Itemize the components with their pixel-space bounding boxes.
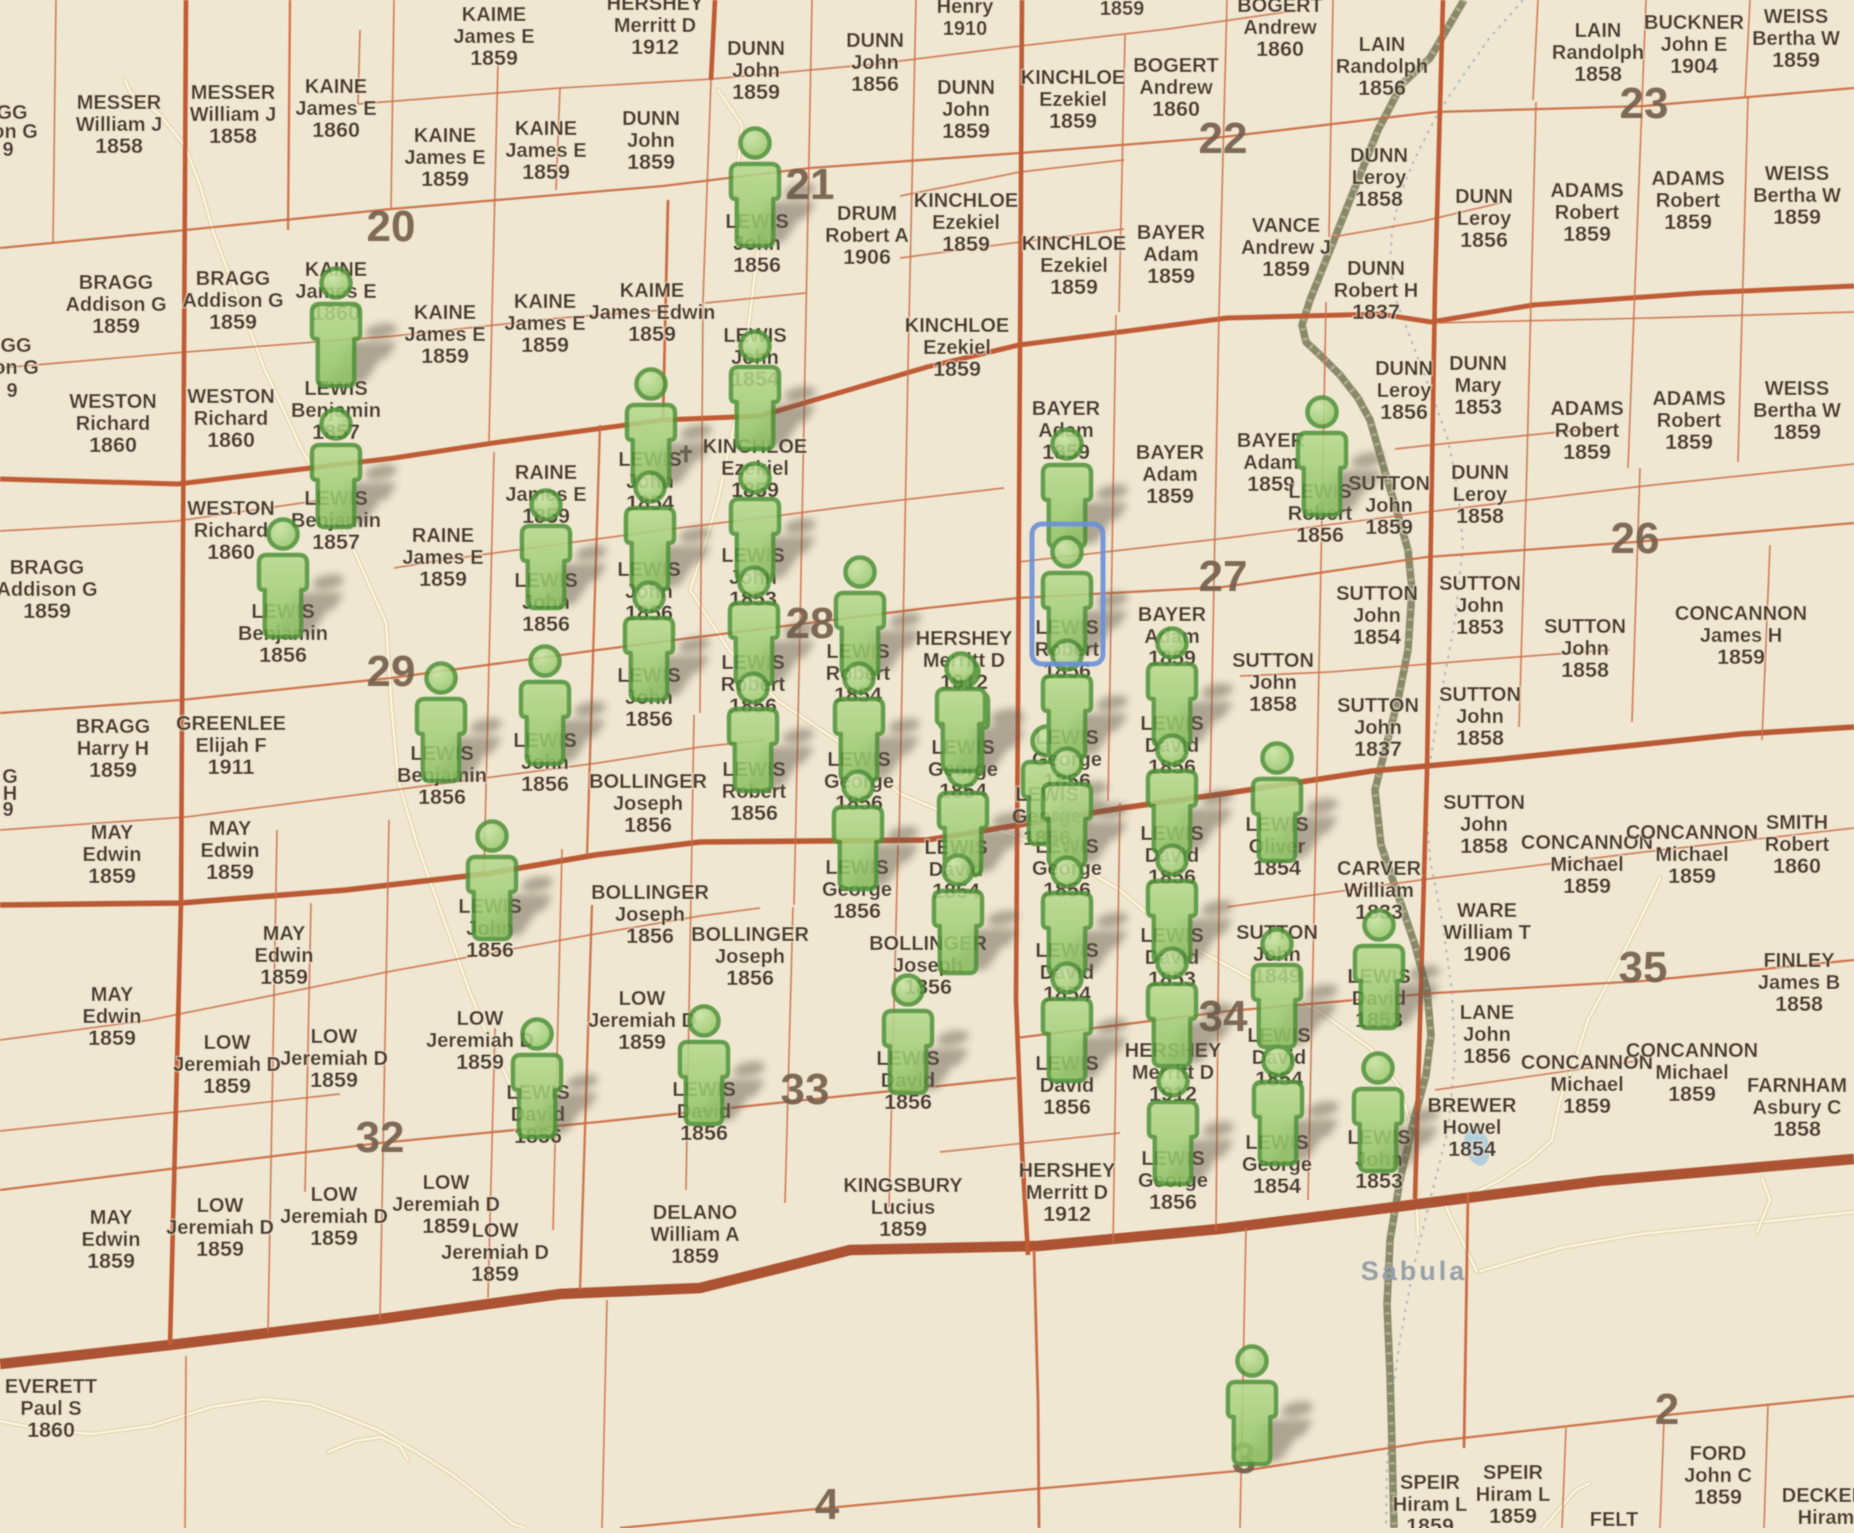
svg-text:1859: 1859	[1050, 275, 1098, 299]
svg-text:MAY: MAY	[91, 822, 134, 844]
svg-text:William J: William J	[76, 114, 163, 136]
svg-text:Edwin: Edwin	[83, 1006, 142, 1028]
svg-text:BRAGG: BRAGG	[196, 268, 270, 290]
svg-text:John E: John E	[1661, 34, 1728, 56]
svg-text:Edwin: Edwin	[255, 945, 314, 967]
svg-text:1858: 1858	[1574, 62, 1622, 86]
svg-text:MESSER: MESSER	[77, 92, 162, 114]
svg-text:DUNN: DUNN	[727, 38, 785, 60]
svg-text:John: John	[1353, 605, 1401, 627]
svg-text:on G: on G	[0, 357, 39, 379]
svg-text:KINGSBURY: KINGSBURY	[843, 1175, 963, 1197]
svg-text:BUCKNER: BUCKNER	[1644, 12, 1745, 34]
svg-text:1859: 1859	[1665, 430, 1713, 454]
svg-text:33: 33	[781, 1065, 830, 1114]
svg-text:1911: 1911	[208, 755, 255, 779]
svg-text:James E: James E	[453, 26, 534, 48]
svg-text:DUNN: DUNN	[1375, 358, 1433, 380]
svg-text:35: 35	[1619, 943, 1668, 992]
svg-text:WEISS: WEISS	[1765, 163, 1829, 185]
svg-text:1853: 1853	[1454, 395, 1502, 419]
svg-text:John: John	[627, 130, 675, 152]
svg-text:LANE: LANE	[1460, 1002, 1514, 1024]
svg-text:John: John	[1456, 595, 1504, 617]
svg-text:1859: 1859	[421, 344, 469, 368]
svg-text:RAINE: RAINE	[515, 462, 577, 484]
svg-text:Addison G: Addison G	[182, 290, 283, 312]
svg-text:John: John	[1460, 814, 1508, 836]
svg-text:DUNN: DUNN	[1455, 186, 1513, 208]
svg-text:DUNN: DUNN	[1350, 145, 1408, 167]
svg-text:Joseph: Joseph	[715, 946, 785, 968]
svg-text:1859: 1859	[1365, 515, 1413, 539]
svg-text:Mary: Mary	[1455, 375, 1503, 397]
svg-text:Merritt D: Merritt D	[1026, 1182, 1108, 1204]
svg-text:1859: 1859	[732, 80, 780, 104]
svg-text:LOW: LOW	[311, 1184, 358, 1206]
svg-text:1859: 1859	[1664, 210, 1712, 234]
svg-text:1859: 1859	[1147, 264, 1195, 288]
svg-text:SUTTON: SUTTON	[1232, 650, 1314, 672]
svg-text:Jeremiah D: Jeremiah D	[280, 1206, 388, 1228]
svg-text:KINCHLOE: KINCHLOE	[1021, 67, 1125, 89]
svg-text:LAIN: LAIN	[1359, 34, 1406, 56]
svg-text:1859: 1859	[1773, 205, 1821, 229]
svg-text:WESTON: WESTON	[69, 391, 156, 413]
svg-text:1906: 1906	[1463, 942, 1511, 966]
svg-text:Richard: Richard	[194, 520, 268, 542]
svg-text:1853: 1853	[1456, 615, 1504, 639]
svg-text:BAYER: BAYER	[1032, 398, 1101, 420]
svg-text:1859: 1859	[206, 860, 254, 884]
svg-text:1858: 1858	[1456, 726, 1504, 750]
svg-text:RAINE: RAINE	[412, 525, 474, 547]
svg-text:ADAMS: ADAMS	[1652, 388, 1725, 410]
svg-text:1858: 1858	[1456, 504, 1504, 528]
svg-text:1859: 1859	[618, 1030, 666, 1054]
svg-text:FELT: FELT	[1590, 1509, 1639, 1528]
svg-text:1858: 1858	[1773, 1117, 1821, 1141]
svg-text:1859: 1859	[627, 150, 675, 174]
svg-text:1856: 1856	[1463, 1044, 1511, 1068]
svg-text:1859: 1859	[88, 864, 136, 888]
svg-text:MAY: MAY	[209, 818, 252, 840]
svg-text:1856: 1856	[833, 899, 881, 923]
svg-text:Adam: Adam	[1143, 244, 1199, 266]
svg-text:Paul S: Paul S	[20, 1398, 81, 1420]
svg-text:1859: 1859	[89, 758, 137, 782]
svg-text:1856: 1856	[626, 924, 674, 948]
svg-text:SUTTON: SUTTON	[1337, 695, 1419, 717]
svg-text:James Edwin: James Edwin	[589, 302, 716, 324]
svg-text:Leroy: Leroy	[1457, 208, 1512, 230]
svg-text:LAIN: LAIN	[1575, 20, 1622, 42]
svg-text:John: John	[1463, 1024, 1511, 1046]
svg-text:1859: 1859	[521, 333, 569, 357]
svg-text:1856: 1856	[733, 253, 781, 277]
svg-text:HERSHEY: HERSHEY	[916, 628, 1013, 650]
svg-text:Robert: Robert	[1555, 420, 1620, 442]
svg-text:MESSER: MESSER	[191, 82, 276, 104]
svg-text:1858: 1858	[1249, 692, 1297, 716]
svg-text:DUNN: DUNN	[1451, 462, 1509, 484]
svg-text:ADAMS: ADAMS	[1550, 398, 1623, 420]
svg-text:HERSHEY: HERSHEY	[1019, 1160, 1116, 1182]
svg-text:FORD: FORD	[1690, 1443, 1747, 1465]
svg-text:Michael: Michael	[1550, 854, 1623, 876]
svg-text:Asbury C: Asbury C	[1753, 1097, 1842, 1119]
svg-text:1859: 1859	[1717, 645, 1765, 669]
svg-text:Bertha W: Bertha W	[1753, 400, 1841, 422]
svg-text:1859: 1859	[1772, 48, 1820, 72]
svg-text:1859: 1859	[1563, 440, 1611, 464]
svg-text:Jeremiah D: Jeremiah D	[280, 1048, 388, 1070]
svg-text:BOLLINGER: BOLLINGER	[591, 882, 709, 904]
svg-text:4: 4	[815, 1480, 840, 1528]
svg-text:1858: 1858	[1460, 834, 1508, 858]
svg-text:1859: 1859	[879, 1217, 927, 1241]
svg-text:John: John	[1456, 706, 1504, 728]
svg-text:1860: 1860	[312, 118, 360, 142]
svg-text:1860: 1860	[1152, 97, 1200, 121]
svg-text:Leroy: Leroy	[1377, 380, 1432, 402]
svg-text:1859: 1859	[933, 357, 981, 381]
svg-text:1837: 1837	[1354, 737, 1402, 761]
svg-text:Bertha W: Bertha W	[1752, 28, 1840, 50]
svg-text:1912: 1912	[631, 35, 679, 59]
svg-text:1859: 1859	[1563, 222, 1611, 246]
svg-text:9: 9	[2, 139, 13, 161]
svg-text:Elijah F: Elijah F	[195, 735, 266, 757]
svg-text:Harry H: Harry H	[77, 738, 149, 760]
svg-text:1856: 1856	[625, 707, 673, 731]
svg-text:John: John	[1365, 495, 1413, 517]
svg-text:1856: 1856	[522, 612, 570, 636]
svg-text:1859: 1859	[310, 1226, 358, 1250]
svg-text:1856: 1856	[624, 813, 672, 837]
svg-text:KAINE: KAINE	[305, 76, 367, 98]
svg-text:VANCE: VANCE	[1252, 215, 1321, 237]
svg-text:Ezekiel: Ezekiel	[923, 337, 991, 359]
svg-text:DUNN: DUNN	[937, 77, 995, 99]
svg-text:KAINE: KAINE	[514, 291, 576, 313]
svg-text:SPEIR: SPEIR	[1483, 1462, 1544, 1484]
svg-text:1859: 1859	[87, 1249, 135, 1273]
svg-text:John: John	[732, 60, 780, 82]
svg-text:James E: James E	[504, 313, 585, 335]
svg-text:MAY: MAY	[91, 984, 134, 1006]
svg-text:1859: 1859	[1694, 1485, 1742, 1509]
svg-text:Ezekiel: Ezekiel	[1039, 89, 1107, 111]
svg-text:Howel: Howel	[1443, 1117, 1502, 1139]
svg-text:KAIME: KAIME	[620, 280, 684, 302]
svg-text:1859: 1859	[942, 232, 990, 256]
svg-text:Randolph: Randolph	[1552, 42, 1644, 64]
svg-text:SUTTON: SUTTON	[1439, 573, 1521, 595]
svg-text:1856: 1856	[466, 938, 514, 962]
svg-text:James E: James E	[404, 147, 485, 169]
svg-text:James E: James E	[404, 324, 485, 346]
svg-text:1859: 1859	[419, 567, 467, 591]
svg-text:1859: 1859	[92, 314, 140, 338]
svg-text:Addison G: Addison G	[0, 579, 98, 601]
svg-text:1859: 1859	[456, 1050, 504, 1074]
svg-text:FARNHAM: FARNHAM	[1747, 1075, 1847, 1097]
svg-text:Andrew: Andrew	[1139, 77, 1213, 99]
svg-text:BRAGG: BRAGG	[10, 557, 84, 579]
svg-text:1860: 1860	[1256, 37, 1304, 61]
svg-text:1904: 1904	[1670, 54, 1718, 78]
svg-text:Richard: Richard	[76, 413, 150, 435]
svg-text:KAINE: KAINE	[515, 118, 577, 140]
svg-text:1859: 1859	[310, 1068, 358, 1092]
svg-text:1858: 1858	[1355, 187, 1403, 211]
svg-text:CONCANNON: CONCANNON	[1626, 1040, 1758, 1062]
svg-text:BRAGG: BRAGG	[76, 716, 150, 738]
svg-text:1858: 1858	[209, 124, 257, 148]
svg-text:William: William	[1344, 880, 1414, 902]
svg-text:1859: 1859	[196, 1237, 244, 1261]
svg-text:1854: 1854	[1353, 625, 1401, 649]
svg-text:BOGERT: BOGERT	[1237, 0, 1323, 17]
svg-text:MAY: MAY	[263, 923, 306, 945]
svg-text:KAINE: KAINE	[414, 125, 476, 147]
svg-text:SUTTON: SUTTON	[1544, 616, 1626, 638]
svg-text:James E: James E	[295, 98, 376, 120]
svg-text:SUTTON: SUTTON	[1439, 684, 1521, 706]
svg-text:Joseph: Joseph	[613, 793, 683, 815]
svg-text:1860: 1860	[207, 540, 255, 564]
svg-text:9: 9	[2, 799, 13, 821]
svg-text:Lucius: Lucius	[871, 1197, 935, 1219]
svg-text:DELANO: DELANO	[653, 1202, 737, 1224]
svg-text:1859: 1859	[209, 310, 257, 334]
svg-text:1859: 1859	[628, 322, 676, 346]
svg-text:1856: 1856	[418, 785, 466, 809]
svg-text:1859: 1859	[1100, 0, 1145, 20]
svg-text:SUTTON: SUTTON	[1443, 792, 1525, 814]
svg-text:SMITH: SMITH	[1766, 812, 1828, 834]
svg-text:Merritt D: Merritt D	[614, 15, 696, 37]
svg-text:WARE: WARE	[1457, 900, 1517, 922]
svg-text:BOLLINGER: BOLLINGER	[691, 924, 809, 946]
svg-text:Ezekiel: Ezekiel	[1040, 255, 1108, 277]
svg-text:Robert: Robert	[1656, 190, 1721, 212]
svg-text:James H: James H	[1700, 625, 1782, 647]
svg-text:CONCANNON: CONCANNON	[1675, 603, 1807, 625]
svg-text:BAYER: BAYER	[1138, 604, 1207, 626]
svg-text:1859: 1859	[522, 160, 570, 184]
svg-text:DUNN: DUNN	[1347, 258, 1405, 280]
svg-text:ADAMS: ADAMS	[1651, 168, 1724, 190]
svg-text:GREENLEE: GREENLEE	[176, 713, 286, 735]
svg-text:1856: 1856	[1460, 228, 1508, 252]
svg-text:1859: 1859	[671, 1244, 719, 1268]
svg-text:Sabula: Sabula	[1361, 1256, 1468, 1286]
svg-text:Robert: Robert	[1657, 410, 1722, 432]
svg-text:LOW: LOW	[472, 1220, 519, 1242]
svg-text:1857: 1857	[312, 530, 360, 554]
svg-text:Bertha W: Bertha W	[1753, 185, 1841, 207]
svg-text:32: 32	[356, 1113, 405, 1162]
svg-text:John: John	[851, 52, 899, 74]
svg-text:Henry: Henry	[937, 0, 995, 18]
svg-text:Adam: Adam	[1142, 464, 1198, 486]
svg-text:1912: 1912	[1043, 1202, 1091, 1226]
svg-text:1859: 1859	[1406, 1514, 1454, 1528]
svg-text:1856: 1856	[259, 643, 307, 667]
svg-text:BOGERT: BOGERT	[1133, 55, 1219, 77]
svg-text:Robert: Robert	[1765, 834, 1830, 856]
svg-text:1859: 1859	[1049, 109, 1097, 133]
svg-text:Edwin: Edwin	[83, 844, 142, 866]
svg-text:EVERETT: EVERETT	[5, 1376, 97, 1398]
svg-text:CONCANNON: CONCANNON	[1626, 822, 1758, 844]
svg-text:Robert A: Robert A	[825, 225, 909, 247]
svg-text:SUTTON: SUTTON	[1336, 583, 1418, 605]
svg-text:Andrew: Andrew	[1243, 17, 1317, 39]
svg-text:1859: 1859	[471, 1262, 519, 1286]
svg-text:Edwin: Edwin	[201, 840, 260, 862]
svg-text:CARVER: CARVER	[1337, 858, 1422, 880]
svg-text:John: John	[1561, 638, 1609, 660]
svg-text:1860: 1860	[207, 428, 255, 452]
svg-text:Hiram L: Hiram L	[1393, 1494, 1467, 1516]
svg-text:Adam: Adam	[1243, 452, 1299, 474]
svg-text:KAINE: KAINE	[414, 302, 476, 324]
svg-text:1856: 1856	[730, 801, 778, 825]
svg-text:1858: 1858	[1775, 992, 1823, 1016]
svg-text:Michael: Michael	[1655, 844, 1728, 866]
svg-text:GG: GG	[0, 335, 31, 357]
svg-text:LOW: LOW	[619, 988, 666, 1010]
svg-text:William T: William T	[1443, 922, 1531, 944]
svg-text:LOW: LOW	[423, 1172, 470, 1194]
svg-text:Addison G: Addison G	[65, 294, 166, 316]
svg-text:1859: 1859	[1489, 1504, 1537, 1528]
svg-text:John: John	[1354, 717, 1402, 739]
svg-text:Andrew J: Andrew J	[1241, 237, 1331, 259]
svg-text:Edwin: Edwin	[82, 1229, 141, 1251]
svg-text:ADAMS: ADAMS	[1550, 180, 1623, 202]
svg-text:KINCHLOE: KINCHLOE	[1022, 233, 1126, 255]
svg-text:LOW: LOW	[457, 1008, 504, 1030]
svg-text:1856: 1856	[1043, 1095, 1091, 1119]
svg-text:Randolph: Randolph	[1336, 56, 1428, 78]
svg-text:Jeremiah D: Jeremiah D	[166, 1217, 274, 1239]
svg-text:1859: 1859	[1563, 874, 1611, 898]
svg-text:Jeremiah D: Jeremiah D	[392, 1194, 500, 1216]
svg-text:1860: 1860	[89, 433, 137, 457]
svg-text:Joseph: Joseph	[615, 904, 685, 926]
svg-text:BRAGG: BRAGG	[79, 272, 153, 294]
svg-text:1854: 1854	[1253, 1174, 1301, 1198]
svg-text:DECKER: DECKER	[1782, 1485, 1854, 1507]
svg-text:1856: 1856	[851, 72, 899, 96]
svg-text:DUNN: DUNN	[622, 108, 680, 130]
svg-text:William A: William A	[650, 1224, 739, 1246]
svg-text:1859: 1859	[1262, 257, 1310, 281]
svg-text:1860: 1860	[1773, 854, 1821, 878]
svg-text:BOLLINGER: BOLLINGER	[589, 771, 707, 793]
svg-text:LOW: LOW	[197, 1195, 244, 1217]
svg-text:BAYER: BAYER	[1137, 222, 1206, 244]
svg-text:1859: 1859	[422, 1214, 470, 1238]
svg-text:Richard: Richard	[194, 408, 268, 430]
svg-text:Ezekiel: Ezekiel	[932, 212, 1000, 234]
svg-text:23: 23	[1620, 79, 1669, 128]
svg-text:FINLEY: FINLEY	[1763, 950, 1835, 972]
svg-text:1856: 1856	[521, 772, 569, 796]
svg-text:1856: 1856	[726, 966, 774, 990]
svg-text:26: 26	[1611, 514, 1660, 563]
svg-text:WEISS: WEISS	[1765, 378, 1829, 400]
svg-text:1856: 1856	[1358, 76, 1406, 100]
svg-text:Leroy: Leroy	[1352, 167, 1407, 189]
svg-text:James E: James E	[402, 547, 483, 569]
svg-text:BREWER: BREWER	[1428, 1095, 1517, 1117]
svg-text:KINCHLOE: KINCHLOE	[914, 190, 1018, 212]
svg-text:BAYER: BAYER	[1237, 430, 1306, 452]
svg-text:HERSHEY: HERSHEY	[607, 0, 704, 15]
svg-text:1856: 1856	[1296, 523, 1344, 547]
svg-text:William J: William J	[190, 104, 277, 126]
svg-text:1859: 1859	[1668, 1082, 1716, 1106]
svg-text:WESTON: WESTON	[187, 498, 274, 520]
svg-text:1859: 1859	[1773, 420, 1821, 444]
svg-text:Jeremiah D: Jeremiah D	[173, 1054, 281, 1076]
svg-text:1858: 1858	[95, 134, 143, 158]
svg-text:20: 20	[367, 202, 416, 251]
svg-text:WESTON: WESTON	[187, 386, 274, 408]
svg-text:LOW: LOW	[311, 1026, 358, 1048]
svg-text:LOW: LOW	[204, 1032, 251, 1054]
svg-text:Jeremiah D: Jeremiah D	[441, 1242, 549, 1264]
svg-text:1859: 1859	[942, 119, 990, 143]
svg-text:DRUM: DRUM	[837, 203, 897, 225]
svg-text:WEISS: WEISS	[1764, 6, 1828, 28]
svg-text:1859: 1859	[470, 46, 518, 70]
svg-text:1910: 1910	[943, 18, 988, 40]
svg-text:1859: 1859	[88, 1026, 136, 1050]
svg-text:Robert H: Robert H	[1334, 280, 1418, 302]
svg-text:22: 22	[1199, 114, 1248, 163]
svg-text:2: 2	[1655, 1385, 1679, 1434]
svg-text:1906: 1906	[843, 245, 891, 269]
svg-text:1856: 1856	[1380, 400, 1428, 424]
svg-text:29: 29	[367, 647, 416, 696]
svg-text:Hiram: Hiram	[1798, 1507, 1854, 1528]
svg-text:Jeremiah D: Jeremiah D	[588, 1010, 696, 1032]
svg-text:John C: John C	[1684, 1465, 1752, 1487]
svg-text:John: John	[1249, 672, 1297, 694]
svg-text:James B: James B	[1758, 972, 1840, 994]
svg-text:Jeremiah D: Jeremiah D	[426, 1030, 534, 1052]
svg-text:Leroy: Leroy	[1453, 484, 1508, 506]
svg-text:KINCHLOE: KINCHLOE	[905, 315, 1009, 337]
svg-text:1859: 1859	[421, 167, 469, 191]
svg-text:Robert: Robert	[1555, 202, 1620, 224]
svg-text:BAYER: BAYER	[1136, 442, 1205, 464]
svg-text:1859: 1859	[23, 599, 71, 623]
svg-text:27: 27	[1199, 552, 1248, 601]
svg-text:9: 9	[6, 380, 17, 402]
svg-text:1859: 1859	[1668, 864, 1716, 888]
svg-text:1859: 1859	[1563, 1094, 1611, 1118]
svg-text:1856: 1856	[1149, 1190, 1197, 1214]
svg-text:Michael: Michael	[1655, 1062, 1728, 1084]
svg-text:Michael: Michael	[1550, 1074, 1623, 1096]
